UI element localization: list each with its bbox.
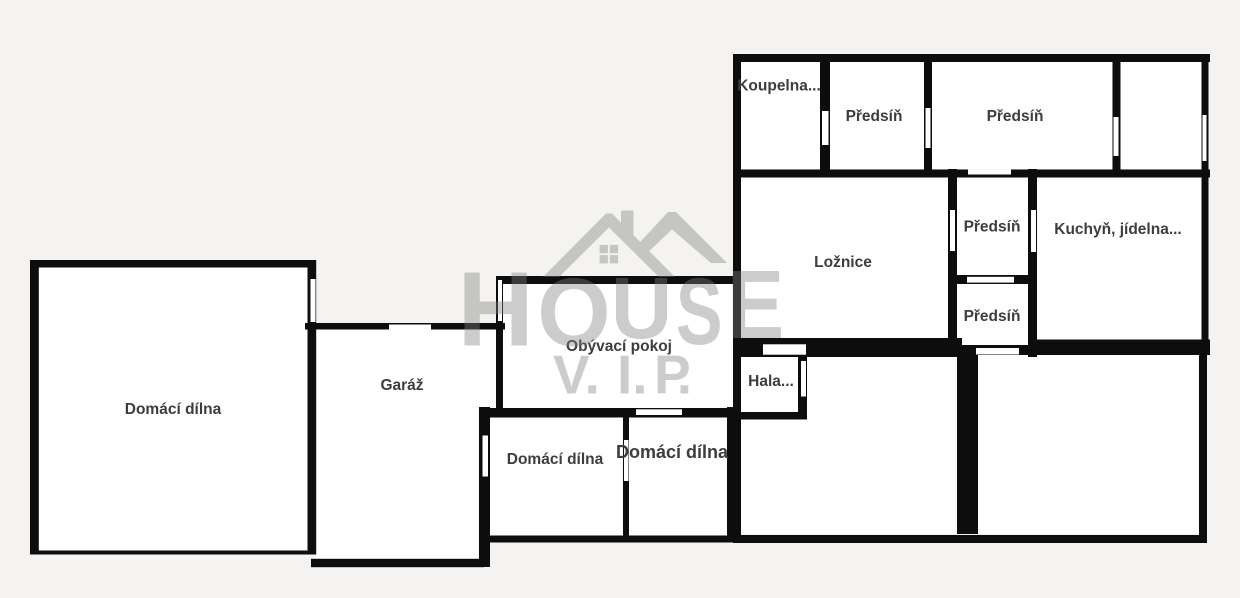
svg-text:Garáž: Garáž (380, 377, 423, 394)
svg-text:E: E (727, 250, 784, 359)
svg-text:Předsíň: Předsíň (987, 108, 1044, 125)
svg-text:Předsíň: Předsíň (964, 219, 1021, 236)
svg-text:Domácí dílna: Domácí dílna (507, 451, 604, 468)
svg-text:Domácí dílna: Domácí dílna (616, 442, 729, 462)
svg-text:H: H (457, 251, 534, 369)
svg-text:I.: I. (617, 344, 648, 406)
svg-text:Kuchyň, jídelna...: Kuchyň, jídelna... (1054, 221, 1181, 238)
svg-text:Domácí dílna: Domácí dílna (125, 401, 222, 418)
svg-text:.: . (677, 344, 692, 406)
svg-text:U: U (611, 260, 672, 357)
svg-text:Ložnice: Ložnice (814, 254, 872, 271)
svg-text:V.: V. (553, 344, 600, 406)
svg-text:Předsíň: Předsíň (964, 308, 1021, 325)
svg-text:Předsíň: Předsíň (846, 108, 903, 125)
svg-text:Hala...: Hala... (748, 373, 794, 390)
svg-text:Koupelna...: Koupelna... (737, 78, 821, 95)
